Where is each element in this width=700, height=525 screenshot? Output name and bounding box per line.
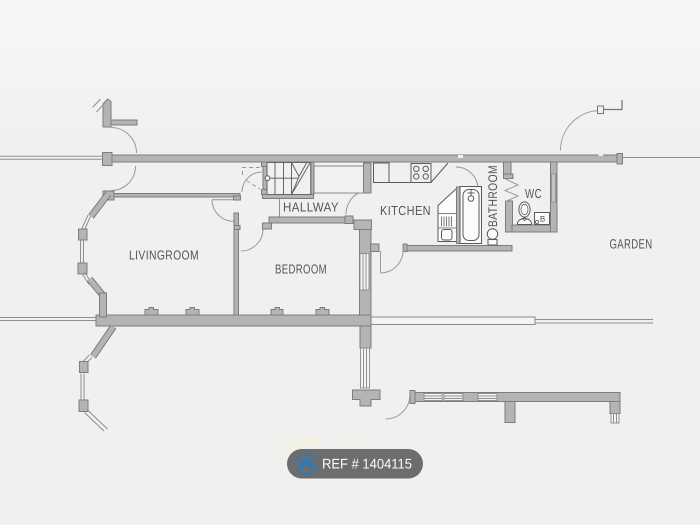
svg-text:HALLWAY: HALLWAY bbox=[283, 200, 339, 215]
svg-text:BEDROOM: BEDROOM bbox=[275, 262, 327, 277]
svg-text:LIVINGROOM: LIVINGROOM bbox=[129, 248, 199, 263]
svg-text:REF # 1404115: REF # 1404115 bbox=[322, 456, 412, 472]
svg-text:KITCHEN: KITCHEN bbox=[380, 203, 431, 218]
svg-text:GARDEN: GARDEN bbox=[610, 237, 653, 252]
svg-text:B: B bbox=[540, 215, 545, 224]
svg-text:BATHROOM: BATHROOM bbox=[486, 165, 500, 227]
svg-text:WC: WC bbox=[525, 186, 542, 201]
